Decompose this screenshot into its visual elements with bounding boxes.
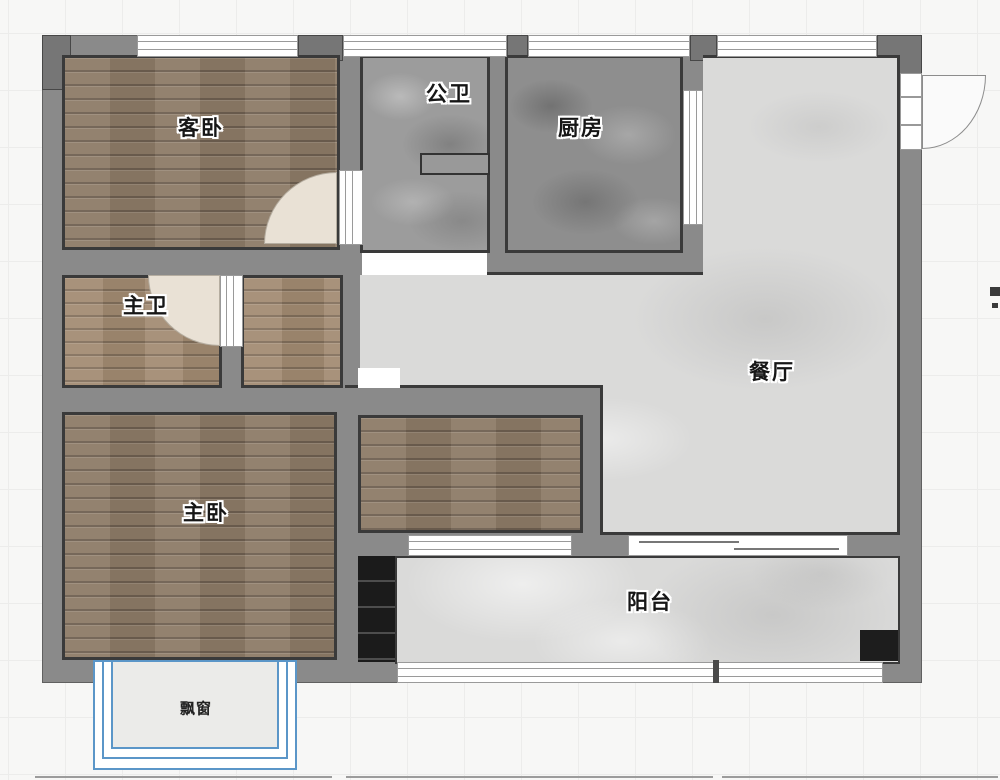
window-mullion bbox=[713, 660, 719, 683]
bottom-baseline bbox=[722, 776, 998, 778]
study-entry-threshold bbox=[358, 368, 400, 388]
master-bathroom-label: 主卫 bbox=[123, 290, 169, 320]
entrance-door-frame bbox=[900, 73, 922, 150]
sliding-panel-line bbox=[734, 548, 839, 550]
dining-room-label: 餐厅 bbox=[749, 356, 795, 386]
study-balcony-window bbox=[408, 535, 572, 556]
room-study bbox=[358, 415, 583, 533]
balcony-cabinet bbox=[358, 556, 395, 662]
guest-bedroom-label: 客卧 bbox=[178, 112, 224, 142]
bottom-baseline bbox=[35, 776, 332, 778]
balcony-label: 阳台 bbox=[627, 586, 673, 616]
floor-plan-page: { "rooms": { "guest_bedroom": { "label":… bbox=[0, 0, 1000, 780]
sliding-panel-line bbox=[639, 541, 739, 543]
room-master-bedroom bbox=[62, 412, 337, 660]
floorplan-canvas: 飘窗 客卧 公卫 厨房 主卫 餐厅 主卧 阳台 bbox=[0, 0, 1000, 780]
balcony-appliance bbox=[860, 630, 898, 661]
guest-bathroom-entry bbox=[362, 253, 487, 275]
wall-edge bbox=[487, 272, 703, 275]
entrance-door-swing bbox=[922, 75, 986, 149]
bottom-baseline bbox=[346, 776, 713, 778]
master-bathroom-door-frame bbox=[220, 275, 243, 347]
window bbox=[528, 35, 690, 57]
bay-window-label: 飘窗 bbox=[180, 698, 212, 719]
master-bedroom-label: 主卧 bbox=[183, 497, 229, 527]
bathroom-partition bbox=[420, 153, 490, 175]
balcony-window bbox=[397, 662, 883, 683]
kitchen-label: 厨房 bbox=[558, 112, 604, 142]
balcony-sliding-door bbox=[628, 535, 848, 556]
window bbox=[137, 35, 298, 57]
wall-edge bbox=[600, 388, 603, 535]
window bbox=[717, 35, 877, 57]
room-hall-nook bbox=[241, 275, 343, 388]
guest-bathroom-label: 公卫 bbox=[426, 78, 472, 108]
kitchen-sliding-door bbox=[683, 90, 703, 225]
guest-bedroom-door-frame bbox=[339, 170, 363, 245]
cropped-label-fragment bbox=[990, 287, 1000, 296]
room-kitchen bbox=[505, 55, 683, 253]
window bbox=[343, 35, 507, 57]
